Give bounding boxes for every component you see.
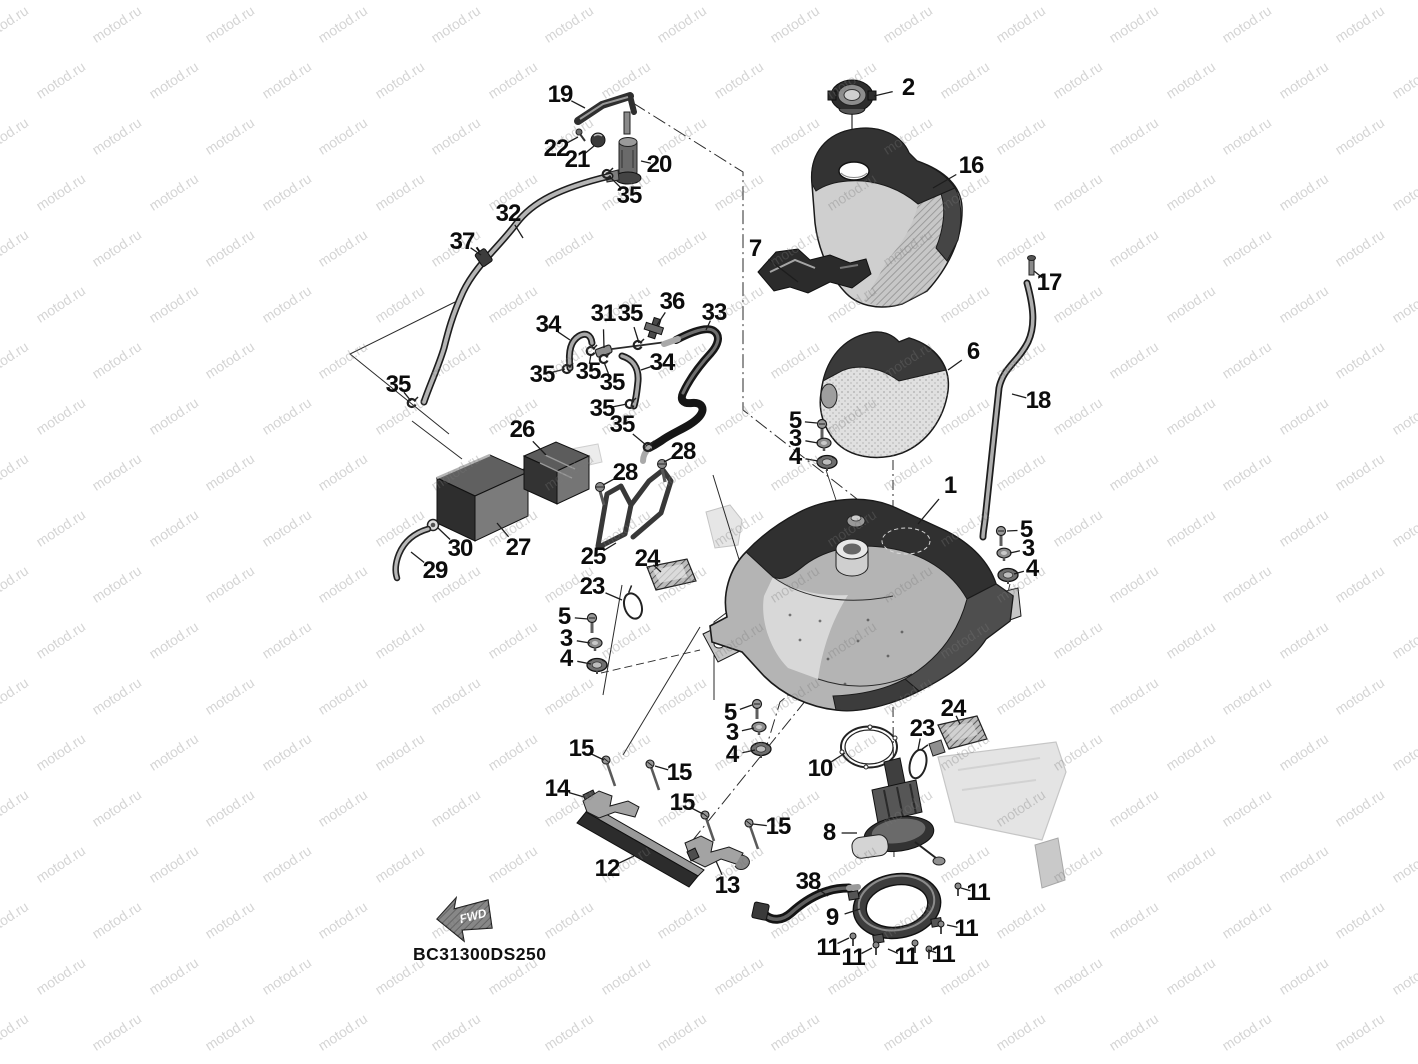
outlet-hose-part bbox=[751, 887, 858, 920]
tank-rail-part bbox=[577, 806, 704, 887]
tank-bracket-14-part bbox=[583, 790, 639, 818]
parts-diagram-page: FWD motod.rumotod.rumotod.rumotod.rumoto… bbox=[0, 0, 1418, 1064]
hose-clip-37-part bbox=[472, 244, 493, 267]
fwd-arrow: FWD bbox=[437, 898, 492, 941]
pump-retainer-ring-part bbox=[846, 867, 946, 947]
breather-hose-33-part bbox=[643, 329, 718, 461]
wire-clamp-23-left-part bbox=[619, 584, 645, 621]
fuel-cock-lever-part bbox=[578, 96, 634, 134]
fuel-hose-32-part bbox=[424, 176, 610, 402]
exploded-diagram: FWD bbox=[0, 0, 1418, 1064]
damper-strip-24-right-part bbox=[929, 716, 987, 756]
damper-strip-24-left-part bbox=[647, 559, 696, 590]
drawing-code: BC31300DS250 bbox=[413, 944, 546, 965]
pin-part bbox=[1028, 256, 1036, 276]
breather-rod-part bbox=[983, 283, 1033, 537]
fuel-tank-part bbox=[703, 499, 1021, 710]
canister-part bbox=[437, 455, 528, 541]
fuel-cap-part bbox=[828, 80, 876, 114]
side-cover-part bbox=[820, 332, 949, 457]
lever-screw-part bbox=[576, 129, 585, 141]
lever-grommet-part bbox=[591, 133, 605, 147]
fuel-pump-part bbox=[851, 758, 945, 865]
tee-joint-36-part bbox=[642, 316, 665, 341]
